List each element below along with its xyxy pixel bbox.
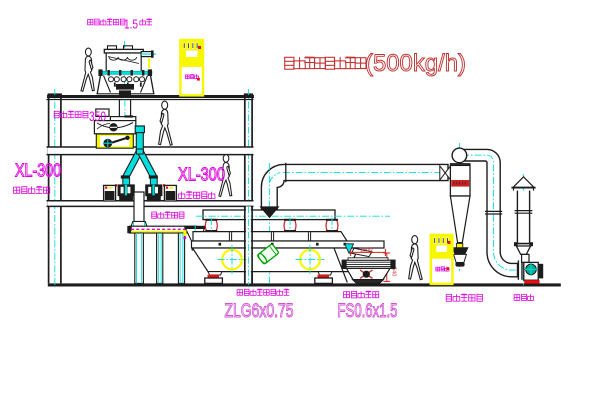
svg-text:XL-300: XL-300 <box>178 165 225 185</box>
svg-text:ZLG6x0.75: ZLG6x0.75 <box>225 300 294 322</box>
svg-text:1.5: 1.5 <box>124 16 138 31</box>
svg-text:350: 350 <box>89 109 106 124</box>
svg-text:1500: 1500 <box>360 247 372 253</box>
svg-text:(500kg/h): (500kg/h) <box>365 50 466 77</box>
svg-text:XL-300: XL-300 <box>15 161 61 181</box>
svg-text:FS0.6x1.5: FS0.6x1.5 <box>338 300 398 322</box>
